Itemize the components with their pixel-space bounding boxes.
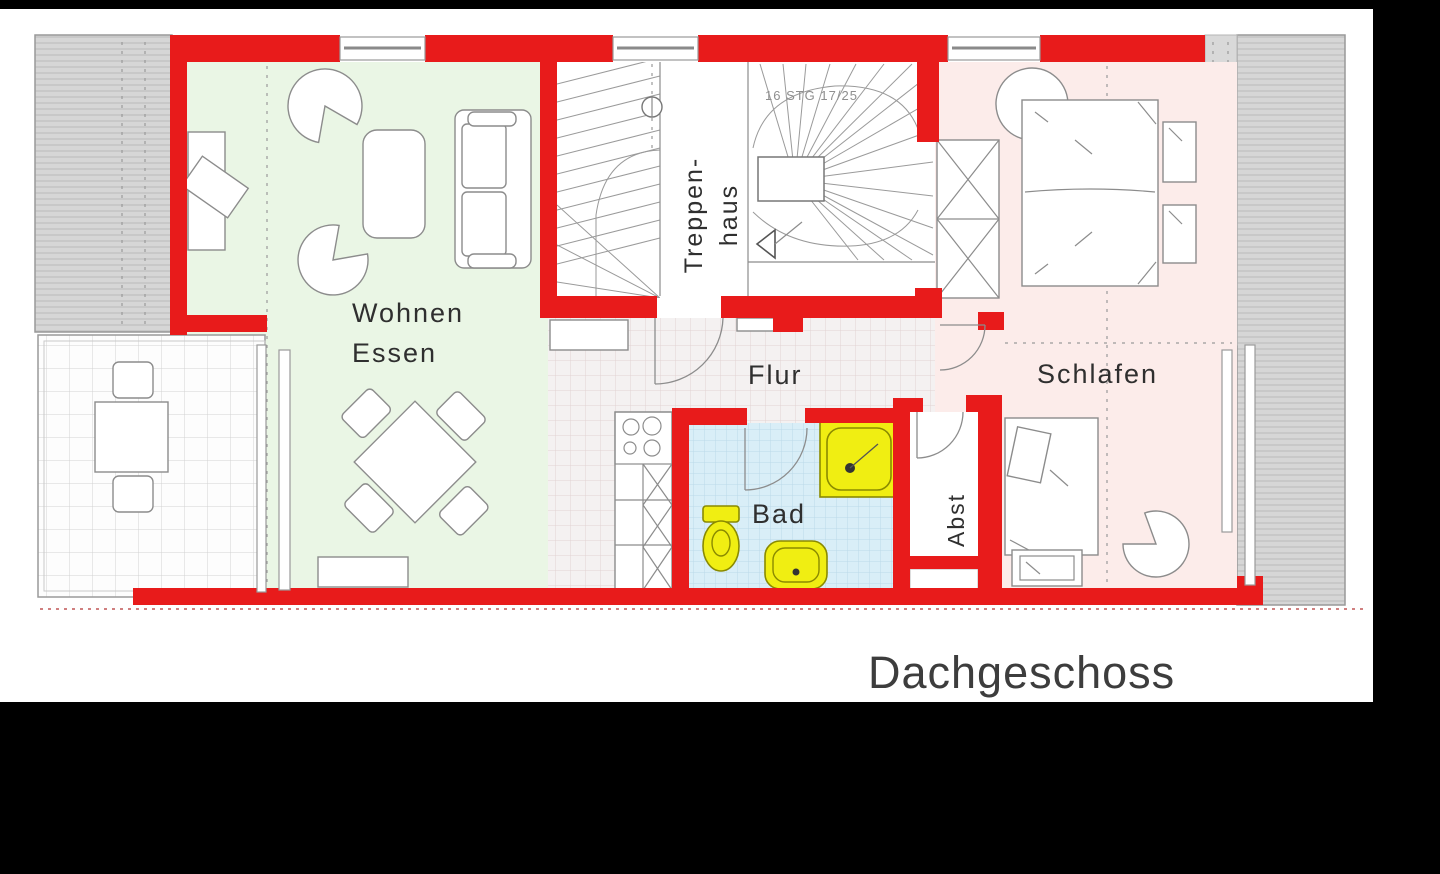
page-title: Dachgeschoss <box>868 647 1175 698</box>
kitchen-unit <box>615 412 672 590</box>
nightstand-bottom <box>1163 205 1196 263</box>
floor-plan-page: Wohnen Essen Treppen- haus 16 STG 17/25 … <box>0 0 1440 874</box>
frame-bar-bottom <box>0 702 1440 874</box>
label-bad: Bad <box>752 499 806 529</box>
window-top-2 <box>613 37 698 60</box>
bedroom-window-2 <box>1245 345 1255 585</box>
roof-left <box>35 35 172 332</box>
terrace-door-glazing-2 <box>279 350 290 590</box>
frame-bar-top <box>0 0 1440 9</box>
wardrobe <box>937 140 999 298</box>
label-essen: Essen <box>352 338 437 368</box>
hall-cabinet <box>550 320 628 350</box>
terrace-door-glazing-1 <box>257 345 266 592</box>
window-top-1 <box>340 37 425 60</box>
double-bed <box>1022 100 1158 286</box>
label-treppenhaus-line1: Treppen- <box>680 157 708 274</box>
sideboard-bottom <box>318 557 408 587</box>
stair-eye <box>758 157 824 201</box>
terrace-chair-bottom <box>113 476 153 512</box>
coffee-table <box>363 130 425 238</box>
storage-niche <box>910 569 978 589</box>
single-bed <box>1005 418 1098 556</box>
nightstand-top <box>1163 122 1196 182</box>
sofa <box>455 110 531 268</box>
toilet <box>703 506 739 571</box>
terrace-table <box>95 402 168 472</box>
label-abst: Abst <box>943 493 969 547</box>
bed-chest <box>1012 550 1082 586</box>
floor-plan-drawing: Wohnen Essen Treppen- haus 16 STG 17/25 … <box>0 0 1440 874</box>
label-wohnen: Wohnen <box>352 298 464 328</box>
frame-bar-right <box>1373 0 1440 702</box>
label-schlafen: Schlafen <box>1037 359 1158 389</box>
label-flur: Flur <box>748 360 803 390</box>
label-treppenhaus-line2: haus <box>715 184 743 246</box>
window-top-3 <box>948 37 1040 60</box>
label-stair-note: 16 STG 17/25 <box>765 88 858 103</box>
bedroom-window-1 <box>1222 350 1232 532</box>
terrace-chair-top <box>113 362 153 398</box>
sink <box>765 541 827 589</box>
